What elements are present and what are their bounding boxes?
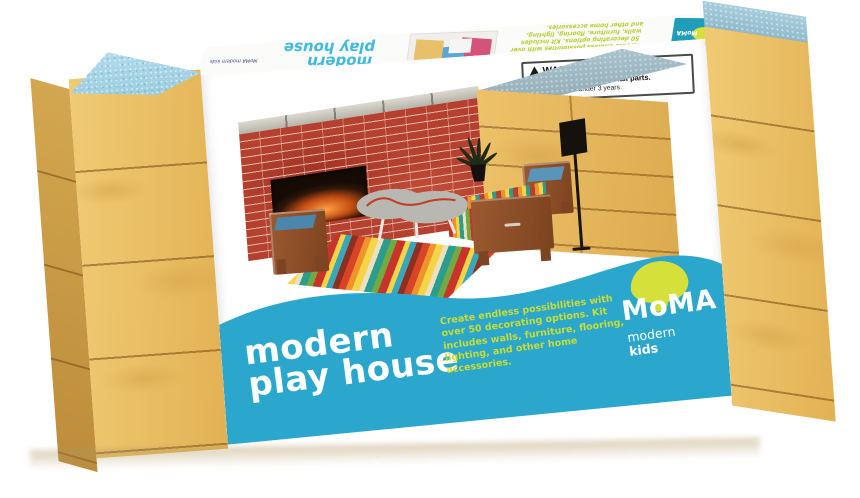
box-left-front-blocks — [69, 70, 228, 459]
blue-wave-band: modern play house Create endless possibi… — [215, 238, 732, 445]
bench-handle — [504, 223, 520, 227]
lamp-pole — [573, 153, 582, 247]
brand-sub-kids: kids — [628, 340, 659, 359]
product-photo: MoMA modern kids modern play house Creat… — [0, 0, 860, 475]
top-flap-logo-text: MoMA — [676, 29, 698, 36]
block-seams — [69, 70, 228, 459]
kidney-table-graphic — [351, 176, 473, 244]
box-front-panel: WARNING: CHOKING HAZARD—Small parts. Not… — [201, 39, 733, 445]
potted-plant — [452, 114, 501, 183]
chair-leg — [561, 201, 571, 214]
product-box: MoMA modern kids modern play house Creat… — [12, 0, 844, 498]
kidney-coffee-table — [351, 176, 473, 244]
plant-pot — [470, 164, 487, 182]
moma-kids-logo: MoMA modern kids — [617, 261, 732, 393]
thumb-floor — [448, 38, 472, 53]
top-flap-fine-print: MoMA modern kids — [197, 57, 258, 64]
toy-chair-left — [269, 209, 329, 275]
bench-body — [471, 194, 555, 254]
chair-seat — [527, 166, 564, 182]
lamp-shade — [559, 118, 587, 157]
